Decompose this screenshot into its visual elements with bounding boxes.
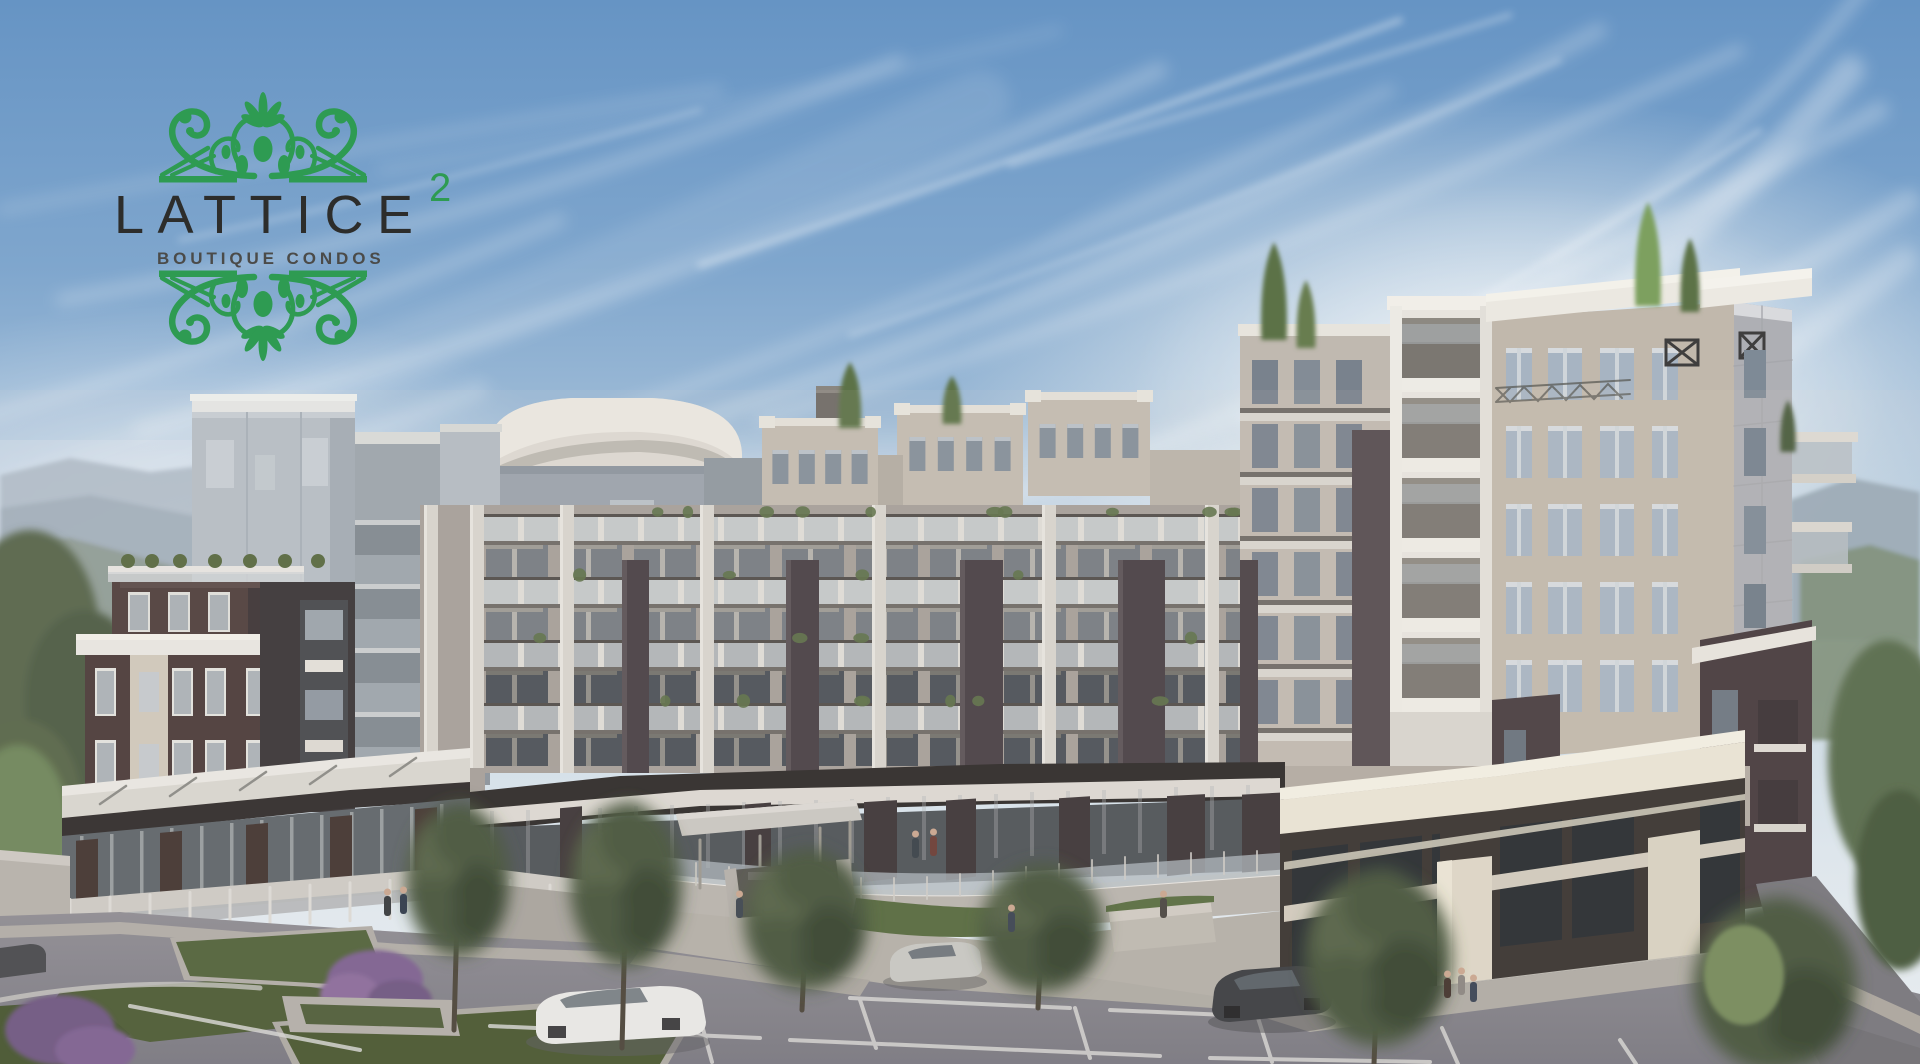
svg-text:2: 2	[429, 166, 451, 210]
svg-text:BOUTIQUE CONDOS: BOUTIQUE CONDOS	[157, 249, 385, 268]
svg-text:LATTICE: LATTICE	[114, 185, 427, 245]
